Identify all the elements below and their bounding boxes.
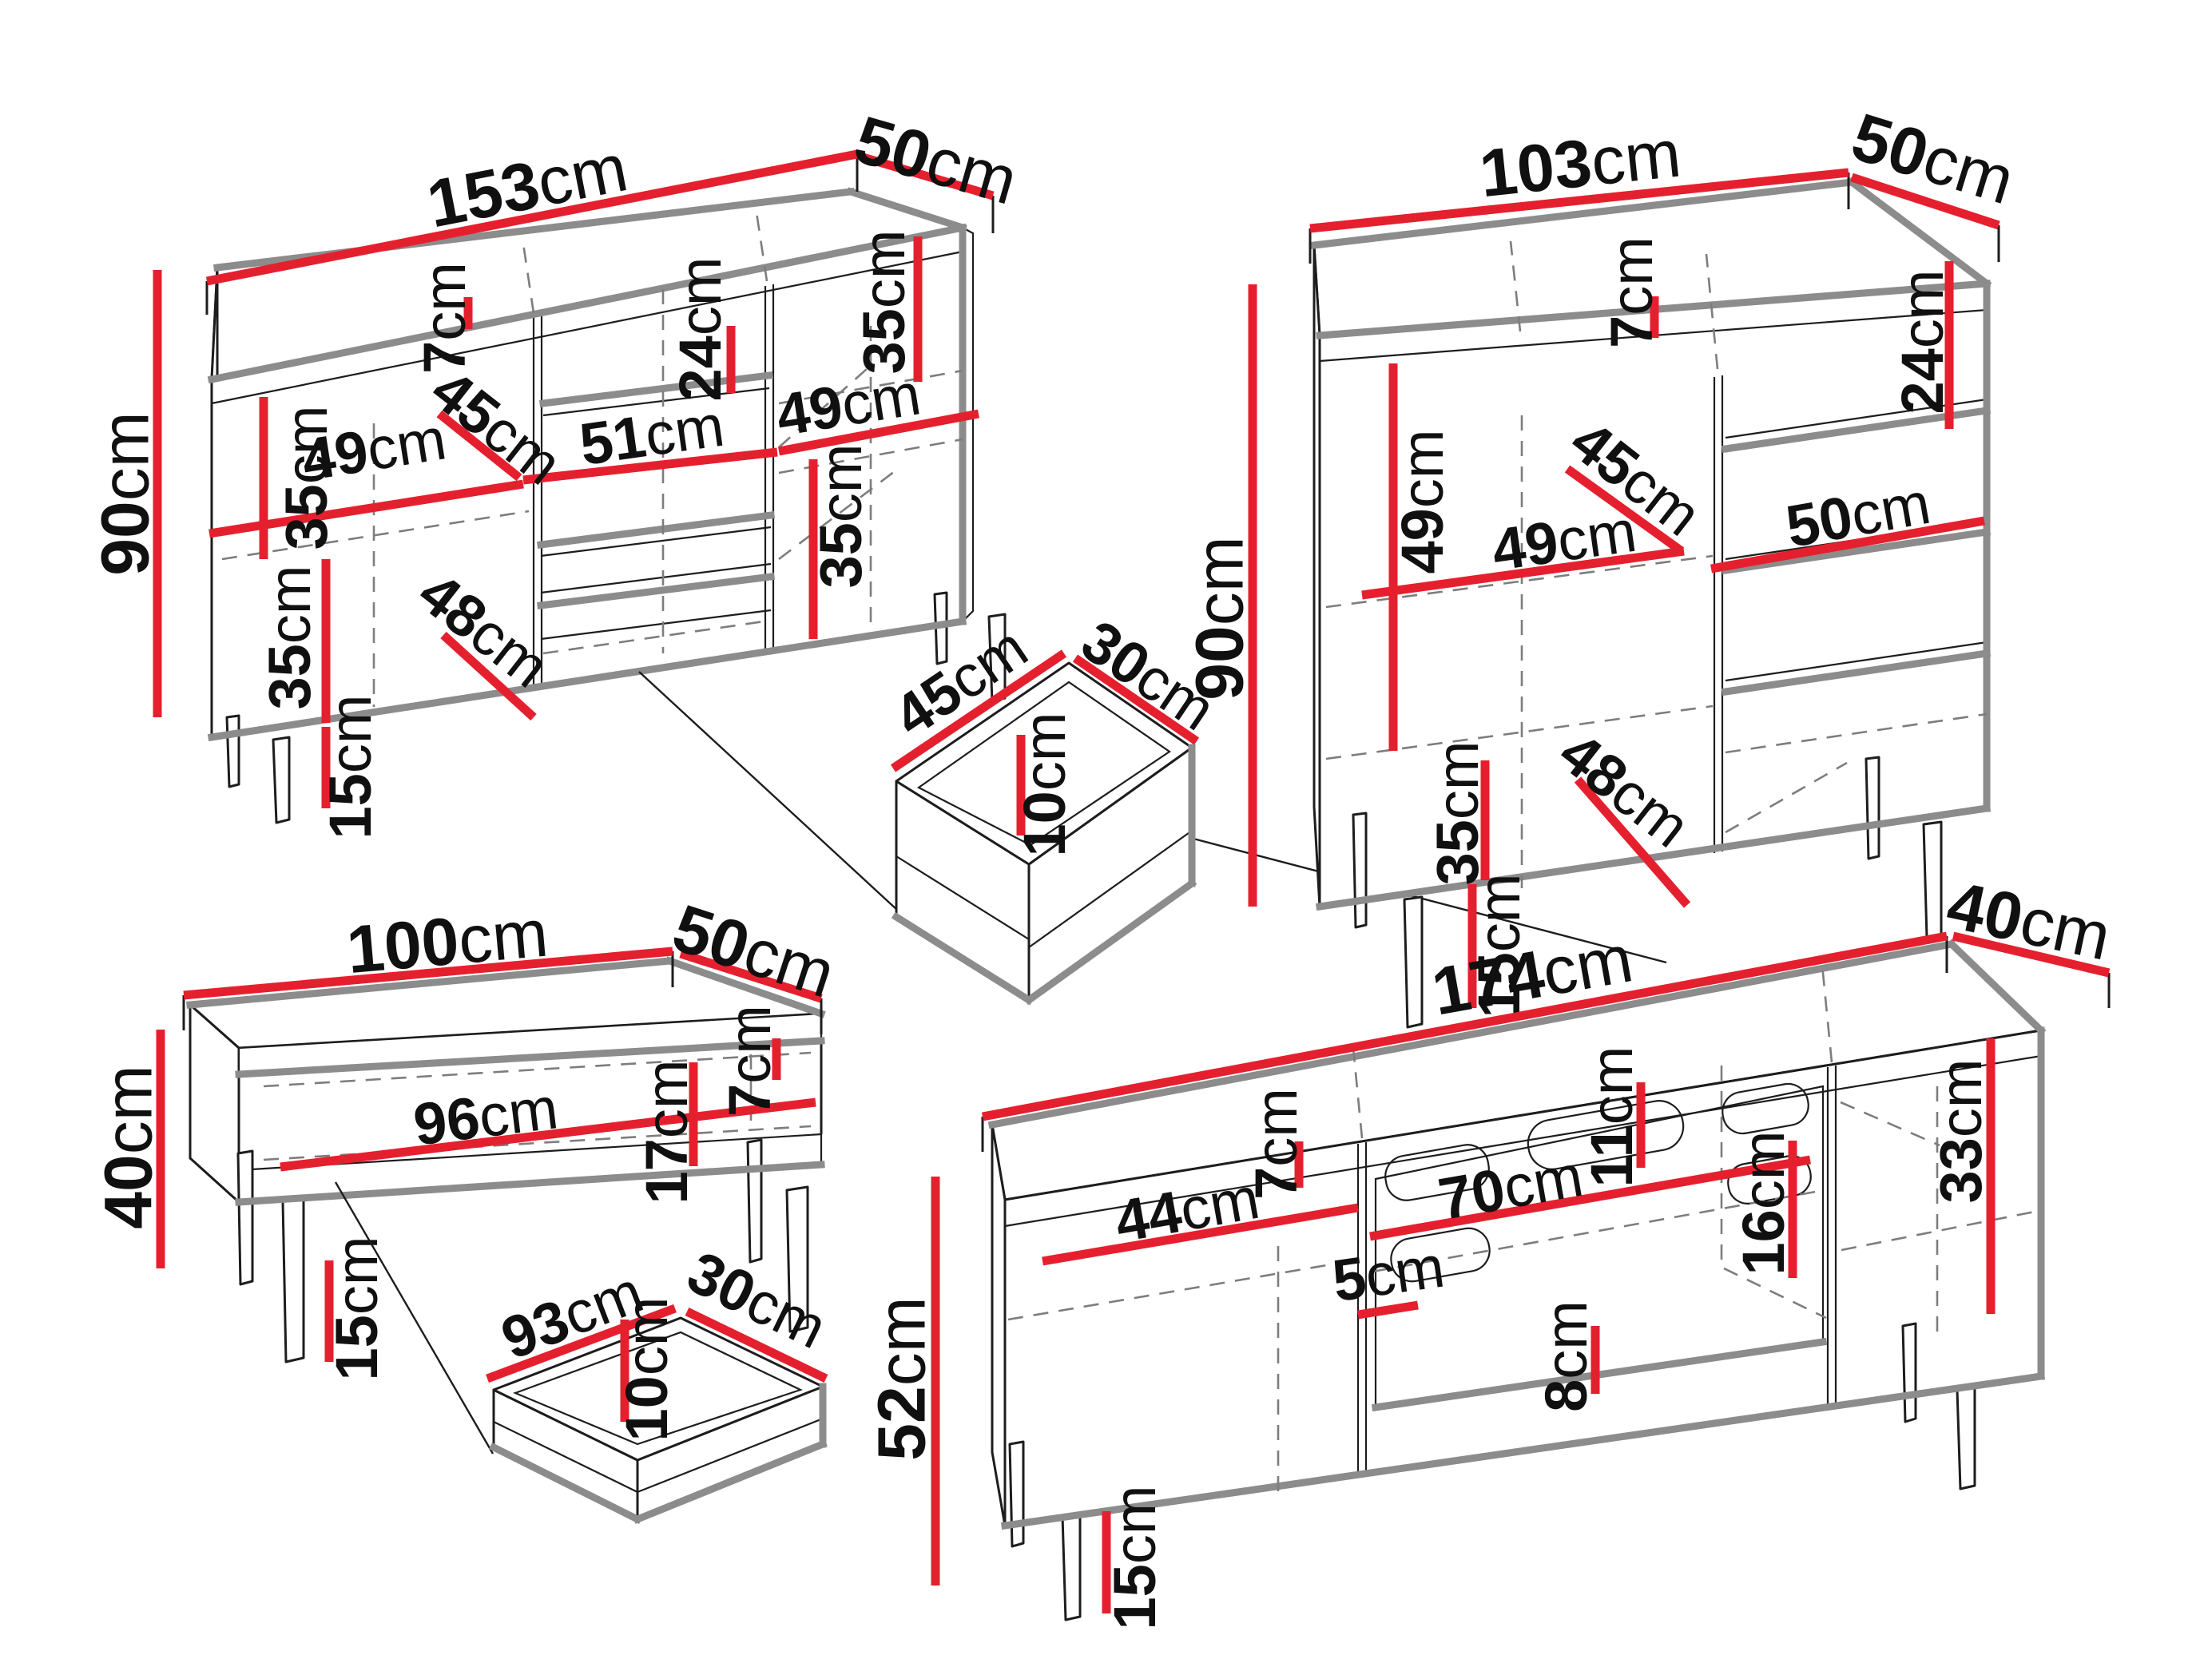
dim-table-height-label: 40cm bbox=[90, 1065, 165, 1228]
dim-shelf-bottom-left-label: 35cm bbox=[256, 566, 323, 710]
furniture-dimension-diagram: 153cm 50cm 90cm 35cm 7cm 24cm 35cm 45cm … bbox=[0, 0, 2212, 1659]
dim-sideboard-small-height-label: 90cm bbox=[1181, 536, 1257, 700]
leader-line-sideboard-large-drawer bbox=[639, 672, 898, 911]
dim-tv-height-label: 52cm bbox=[864, 1296, 939, 1460]
dim-tv-top-gap-label: 7cm bbox=[1243, 1088, 1309, 1200]
dim-niche-width-label: 96cm bbox=[410, 1074, 562, 1157]
dim-table-top-gap-label: 7cm bbox=[717, 1005, 783, 1117]
dim-sideboard-large-height-label: 90cm bbox=[87, 411, 162, 575]
dim-tv-right-height-label: 33cm bbox=[1928, 1059, 1994, 1204]
sideboard-large-drawing: 153cm 50cm 90cm 35cm 7cm 24cm 35cm 45cm … bbox=[87, 101, 1025, 839]
dim-top-gap-label: 7cm bbox=[411, 262, 478, 374]
dim-small-shelf-bottom-label: 35cm bbox=[1424, 741, 1491, 886]
sideboard-small-drawing: 103cm 50cm 90cm 49cm 7cm 24cm 45cm 49cm … bbox=[1181, 98, 2022, 1027]
dim-drawer-front-label: 24cm bbox=[667, 257, 733, 402]
dim-drawer-wide-height-label: 10cm bbox=[614, 1297, 680, 1442]
dim-slot-gap-label: 16cm bbox=[1730, 1131, 1797, 1276]
dim-bottom-gap-label: 8cm bbox=[1533, 1300, 1599, 1412]
dim-tv-leg-label: 15cm bbox=[1102, 1486, 1168, 1630]
dim-leg-height-label: 15cm bbox=[317, 695, 383, 839]
dim-slot-offset-label: 11cm bbox=[1579, 1046, 1645, 1188]
diagram-canvas: 153cm 50cm 90cm 35cm 7cm 24cm 35cm 45cm … bbox=[0, 0, 2212, 1659]
dim-shelf-top-right-label: 35cm bbox=[851, 230, 917, 375]
dim-shelf-bottom-right-label: 35cm bbox=[808, 444, 874, 589]
dim-small-drawer-front-label: 24cm bbox=[1889, 270, 1956, 415]
dim-drawer-small-height-label: 10cm bbox=[1011, 712, 1078, 857]
dim-small-top-gap-label: 7cm bbox=[1598, 236, 1665, 348]
dim-door-shelf-label: 49cm bbox=[1389, 430, 1455, 574]
dim-niche-height-label: 17cm bbox=[633, 1060, 700, 1205]
